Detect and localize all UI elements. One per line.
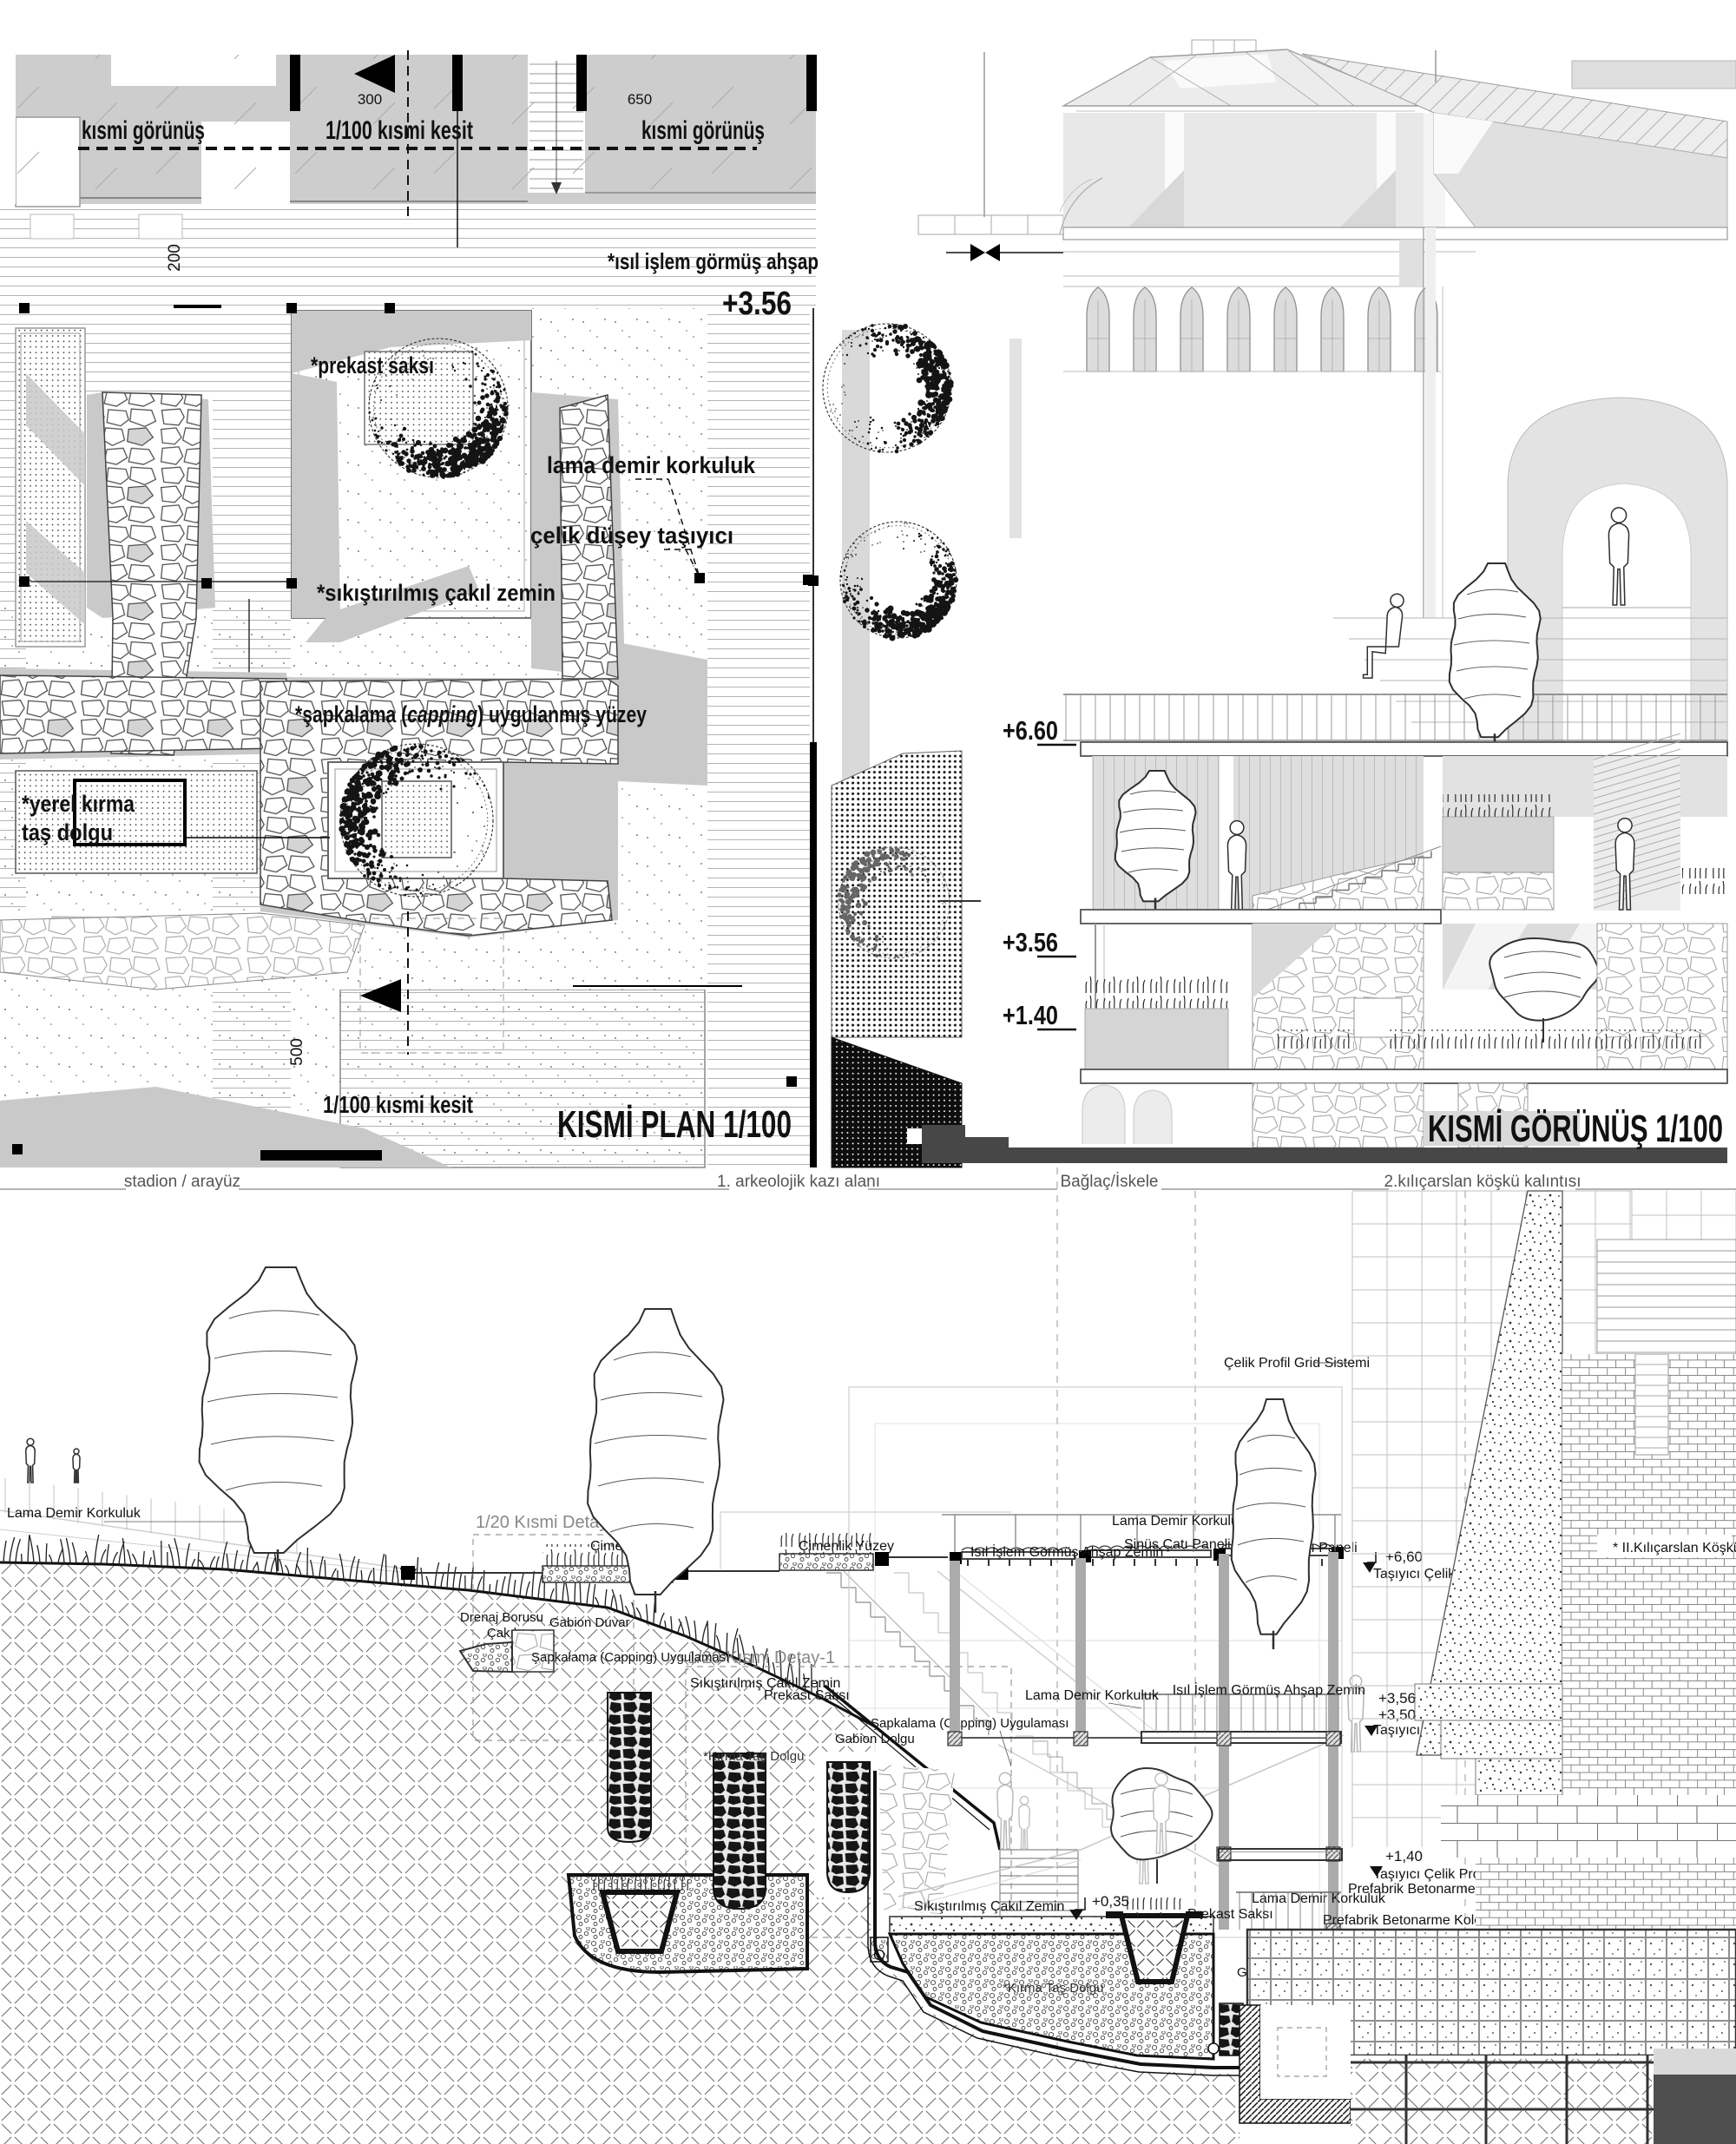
- svg-text:Şapkalama (Capping) Uygulaması: Şapkalama (Capping) Uygulaması: [531, 1650, 729, 1665]
- svg-text:+1,40: +1,40: [1385, 1848, 1423, 1864]
- svg-text:* II.Kılıçarslan Köşkü: * II.Kılıçarslan Köşkü: [1613, 1541, 1736, 1555]
- svg-text:Bağlaç/İskele: Bağlaç/İskele: [1060, 1173, 1158, 1191]
- svg-text:çelik düşey taşıyıcı: çelik düşey taşıyıcı: [530, 523, 733, 549]
- svg-text:+3,56: +3,56: [1378, 1690, 1416, 1707]
- svg-text:*yerel kırma: *yerel kırma: [22, 791, 135, 817]
- svg-text:200: 200: [166, 244, 184, 272]
- svg-text:650: 650: [628, 91, 652, 108]
- svg-text:Prekast Saksı: Prekast Saksı: [1187, 1907, 1273, 1922]
- svg-text:+1.40: +1.40: [1003, 1000, 1058, 1030]
- svg-text:Prefabrik Betonarme Kolon: Prefabrik Betonarme Kolon: [1323, 1913, 1489, 1928]
- svg-text:Drenaj Borusu: Drenaj Borusu: [460, 1610, 543, 1625]
- svg-text:Lama Demir Korkuluk: Lama Demir Korkuluk: [1025, 1688, 1160, 1703]
- svg-text:Sıkıştırılmış Çakıl Zemin: Sıkıştırılmış Çakıl Zemin: [914, 1899, 1064, 1914]
- svg-text:500: 500: [288, 1038, 306, 1066]
- svg-text:Sinüs Çatı Paneli: Sinüs Çatı Paneli: [1124, 1537, 1231, 1552]
- svg-text:kısmi görünüş: kısmi görünüş: [641, 116, 765, 145]
- svg-text:+3,50: +3,50: [1378, 1707, 1416, 1723]
- svg-text:taş dolgu: taş dolgu: [22, 819, 113, 845]
- svg-text:*Kırma Taş Dolgu: *Kırma Taş Dolgu: [1003, 1981, 1103, 1996]
- svg-text:Isıl İşlem Görmüş Ahşap Zemin: Isıl İşlem Görmüş Ahşap Zemin: [1173, 1681, 1365, 1698]
- svg-text:+3.56: +3.56: [722, 286, 792, 322]
- svg-text:*ısıl işlem görmüş ahşap: *ısıl işlem görmüş ahşap: [608, 248, 819, 274]
- svg-text:Taşıyıcı Çelik Profil: Taşıyıcı Çelik Profil: [1373, 1867, 1490, 1882]
- svg-text:KISMİ PLAN 1/100: KISMİ PLAN 1/100: [557, 1103, 792, 1146]
- svg-text:300: 300: [358, 91, 382, 108]
- svg-text:*şapkalama (capping) uygulanmı: *şapkalama (capping) uygulanmış yüzey: [295, 701, 647, 727]
- svg-text:Prekast Saksı: Prekast Saksı: [764, 1688, 850, 1703]
- svg-text:Lama Demir Korkuluk: Lama Demir Korkuluk: [7, 1506, 141, 1521]
- svg-text:Lama Demir Korkuluk: Lama Demir Korkuluk: [1252, 1891, 1386, 1906]
- svg-text:+0,35: +0,35: [1092, 1893, 1129, 1910]
- svg-text:+6,60: +6,60: [1385, 1549, 1423, 1565]
- svg-text:*prekast saksı: *prekast saksı: [311, 352, 434, 378]
- svg-text:KISMİ GÖRÜNÜŞ 1/100: KISMİ GÖRÜNÜŞ 1/100: [1428, 1108, 1723, 1150]
- svg-text:Lama Demir Korkuluk: Lama Demir Korkuluk: [1112, 1514, 1246, 1529]
- svg-text:lama demir korkuluk: lama demir korkuluk: [547, 452, 756, 478]
- svg-text:Çimenlik Yüzey: Çimenlik Yüzey: [799, 1539, 894, 1554]
- svg-text:Gabion Duvar: Gabion Duvar: [549, 1615, 630, 1630]
- svg-text:*Kırma Taş Dolgu: *Kırma Taş Dolgu: [703, 1749, 804, 1764]
- svg-text:*sıkıştırılmış çakıl zemin: *sıkıştırılmış çakıl zemin: [317, 580, 556, 606]
- svg-text:1/100 kısmi kesit: 1/100 kısmi kesit: [325, 116, 473, 145]
- svg-text:1. arkeolojik kazı alanı: 1. arkeolojik kazı alanı: [717, 1173, 880, 1191]
- svg-text:+6.60: +6.60: [1003, 715, 1058, 746]
- svg-text:kısmi görünüş: kısmi görünüş: [82, 116, 205, 145]
- svg-text:Gabion Dolgu: Gabion Dolgu: [835, 1732, 915, 1746]
- svg-text:stadion / arayüz: stadion / arayüz: [124, 1173, 240, 1191]
- svg-text:+3.56: +3.56: [1003, 927, 1058, 957]
- svg-text:Şapkalama (Capping) Uygulaması: Şapkalama (Capping) Uygulaması: [871, 1716, 1069, 1731]
- svg-text:2.kılıçarslan köşkü kalıntısı: 2.kılıçarslan köşkü kalıntısı: [1384, 1173, 1581, 1191]
- svg-text:1/100 kısmi kesit: 1/100 kısmi kesit: [323, 1091, 473, 1118]
